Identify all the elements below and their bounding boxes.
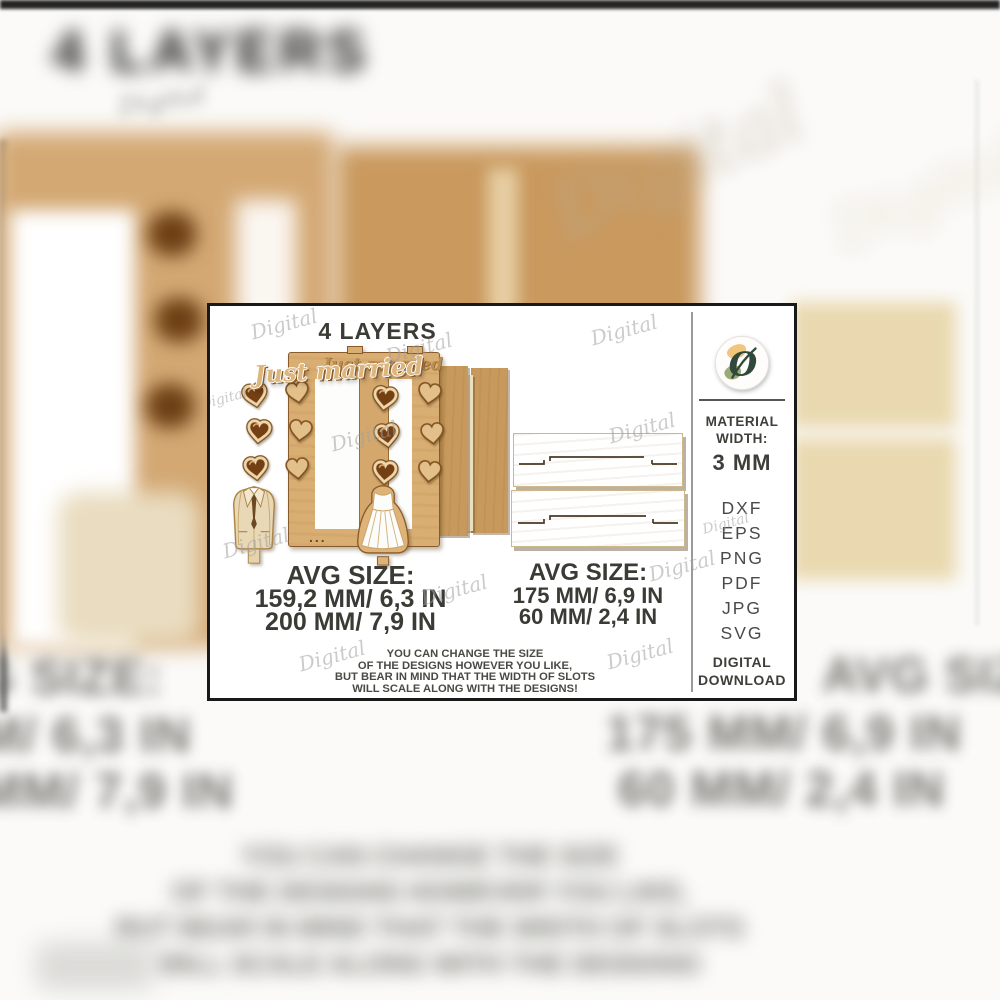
background-top-band <box>0 0 1000 9</box>
material-label-line: WIDTH: <box>691 430 793 447</box>
plank-slots <box>512 491 684 546</box>
background-note-line: BUT BEAR IN MIND THAT THE WIDTH OF SLOTS <box>60 910 800 946</box>
heart-icon <box>283 455 312 482</box>
background-watermark: Digital <box>823 120 1000 267</box>
avg-size-value: 60 MM/ 2,4 IN <box>488 606 688 627</box>
heart-icon <box>286 416 316 444</box>
heart-icon <box>244 417 275 446</box>
background-blurred-size-text: 159,2 MM/ 6,3 IN <box>0 706 192 764</box>
avg-size-value: 200 MM/ 7,9 IN <box>218 611 483 634</box>
page: 4 LAYERS Digital Digital Digital AVG SIZ… <box>0 0 1000 1000</box>
scaling-note: YOU CAN CHANGE THE SIZE OF THE DESIGNS H… <box>330 649 600 695</box>
background-blurred-plank <box>790 438 956 580</box>
watermark: Digital <box>588 310 660 351</box>
heart-icon <box>241 454 272 483</box>
note-line: YOU CAN CHANGE THE SIZE <box>330 649 600 661</box>
background-blurred-plank <box>790 302 956 428</box>
background-blur-blob <box>35 942 155 990</box>
plank-slots <box>514 434 682 486</box>
wedding-dress-icon <box>352 484 414 566</box>
file-format-jpg: JPG <box>691 598 793 619</box>
background-blurred-size-text: AVG SIZE: <box>822 646 1000 704</box>
frame-dots: ... <box>309 529 327 545</box>
file-format-pdf: PDF <box>691 573 793 594</box>
background-note-line: OF THE DESIGNS HOWEVER YOU LIKE, <box>60 874 800 910</box>
background-blurred-size-text: 60 MM/ 2,4 IN <box>618 760 945 818</box>
heart-icon <box>369 383 400 413</box>
stand-plank <box>513 433 683 487</box>
background-blurred-heart <box>148 212 196 256</box>
background-blurred-title: 4 LAYERS <box>52 18 370 85</box>
watermark: Digital <box>604 634 676 675</box>
file-format-svg: SVG <box>691 623 793 644</box>
note-line: BUT BEAR IN MIND THAT THE WIDTH OF SLOTS <box>330 672 600 684</box>
background-blurred-divider <box>976 80 978 625</box>
background-blurred-size-text: 200 MM/ 7,9 IN <box>0 762 234 820</box>
background-watermark: Digital <box>116 80 208 122</box>
note-line: WILL SCALE ALONG WITH THE DESIGNS! <box>330 684 600 696</box>
material-width-value: 3 MM <box>691 450 793 476</box>
wood-back-panel <box>471 368 508 533</box>
product-card: 4 LAYERS Just married ... Just married <box>207 303 797 701</box>
heart-icon <box>414 379 444 408</box>
background-blurred-note: YOU CAN CHANGE THE SIZE OF THE DESIGNS H… <box>60 838 800 982</box>
brand-logo: O <box>713 334 771 392</box>
download-label-line: DIGITAL <box>691 654 793 672</box>
heart-icon <box>370 458 400 486</box>
material-width-label: MATERIAL WIDTH: <box>691 413 793 447</box>
background-blurred-size-text: AVG SIZE: <box>0 648 163 706</box>
sidebar-rule <box>699 399 785 401</box>
background-blurred-size-text: 175 MM/ 6,9 IN <box>606 704 962 762</box>
frame-tab <box>347 346 363 354</box>
download-label-line: DOWNLOAD <box>691 672 793 690</box>
background-blurred-heart <box>155 298 203 342</box>
digital-download-label: DIGITAL DOWNLOAD <box>691 654 793 689</box>
material-label-line: MATERIAL <box>691 413 793 430</box>
background-blurred-heart <box>146 384 194 428</box>
heart-icon <box>415 458 444 486</box>
stand-plank <box>511 490 685 547</box>
heart-icon <box>418 420 447 448</box>
background-blurred-suit <box>58 492 200 644</box>
background-note-line: YOU CAN CHANGE THE SIZE <box>60 838 800 874</box>
background-note-line: WILL SCALE ALONG WITH THE DESIGNS! <box>60 946 800 982</box>
avg-size-value: 175 MM/ 6,9 IN <box>488 585 688 606</box>
